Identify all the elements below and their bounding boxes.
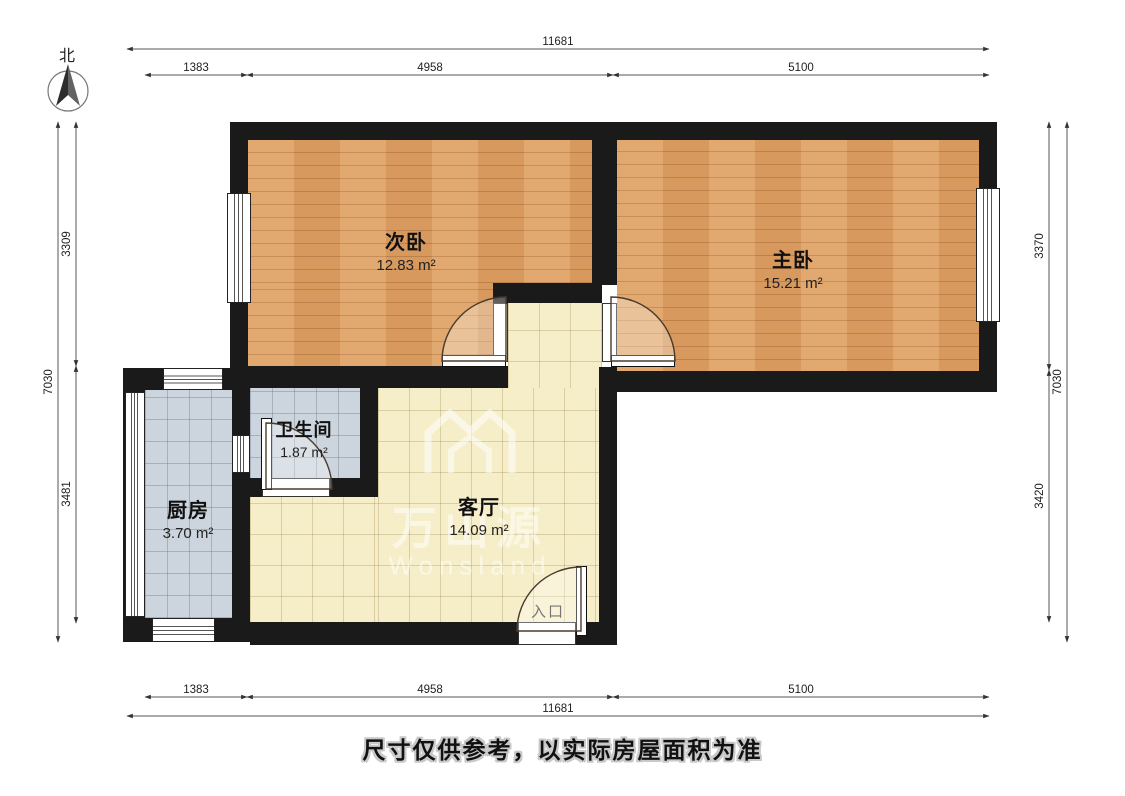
door-entrance [576, 566, 587, 636]
dim-right-seg1: 3370 [1034, 233, 1046, 259]
doorway-bath [262, 478, 330, 497]
dim-top-seg3: 5100 [788, 62, 814, 74]
window-kitchen-north [163, 368, 223, 390]
window-kitchen-east [232, 435, 250, 473]
wall-hall-top [493, 283, 602, 303]
door-bed1 [611, 355, 675, 367]
window-bed2-west [227, 193, 251, 303]
doorway-bed1 [602, 303, 617, 362]
window-bed1-east [976, 188, 1000, 322]
floor-living-west [250, 497, 378, 628]
dim-right-seg2: 3420 [1034, 483, 1046, 509]
dim-left-seg1: 3309 [61, 231, 73, 257]
room-area: 15.21 m² [763, 275, 822, 292]
dim-top-seg2: 4958 [417, 62, 443, 74]
door-bath [261, 418, 272, 490]
wonsland-house-logo-icon [420, 397, 520, 477]
floor-hall [508, 303, 602, 393]
doorway-bed2 [493, 303, 508, 362]
room-area: 14.09 m² [449, 522, 508, 539]
room-label-bath: 卫生间 1.87 m² [276, 416, 333, 460]
dim-bottom-total: 11681 [542, 703, 573, 715]
room-label-kitchen: 厨房 3.70 m² [163, 494, 214, 542]
room-name: 次卧 [376, 226, 435, 255]
room-name: 客厅 [449, 491, 508, 520]
room-area: 3.70 m² [163, 525, 214, 542]
footer-disclaimer: 尺寸仅供参考，以实际房屋面积为准 [0, 731, 1125, 765]
dim-right-total: 7030 [1052, 369, 1064, 395]
wall-top [230, 122, 997, 140]
window-kitchen-west [125, 392, 145, 617]
wall-bedroom-divider [592, 140, 617, 285]
dim-top-seg1: 1383 [183, 62, 209, 74]
room-label-living: 客厅 14.09 m² [449, 491, 508, 539]
dim-left-total: 7030 [43, 369, 55, 395]
dim-bottom-seg3: 5100 [788, 684, 814, 696]
floor-plan-canvas: 万山源 Wonsland [0, 0, 1125, 796]
north-label: 北 [59, 47, 75, 65]
room-label-bed1: 主卧 15.21 m² [763, 244, 822, 292]
wall-bed1-bottom [599, 371, 997, 392]
entrance-label: 入口 [531, 601, 565, 622]
room-area: 12.83 m² [376, 257, 435, 274]
wall-kitchen-east [232, 388, 250, 627]
room-name: 主卧 [763, 244, 822, 273]
room-area: 1.87 m² [276, 444, 333, 460]
wall-living-east [599, 367, 617, 645]
north-arrow-icon [56, 64, 68, 106]
watermark-english: Wonsland [388, 551, 551, 582]
dim-bottom-seg2: 4958 [417, 684, 443, 696]
doorway-entrance [518, 622, 576, 645]
door-bed2 [442, 355, 506, 367]
wall-bed2-bottom [230, 366, 508, 388]
dim-left-seg2: 3481 [61, 481, 73, 507]
dim-top-total: 11681 [542, 36, 573, 48]
room-label-bed2: 次卧 12.83 m² [376, 226, 435, 274]
room-name: 厨房 [163, 494, 214, 523]
dim-bottom-seg1: 1383 [183, 684, 209, 696]
north-compass: 北 [48, 47, 88, 111]
room-name: 卫生间 [276, 416, 333, 442]
window-kitchen-south [152, 618, 215, 642]
